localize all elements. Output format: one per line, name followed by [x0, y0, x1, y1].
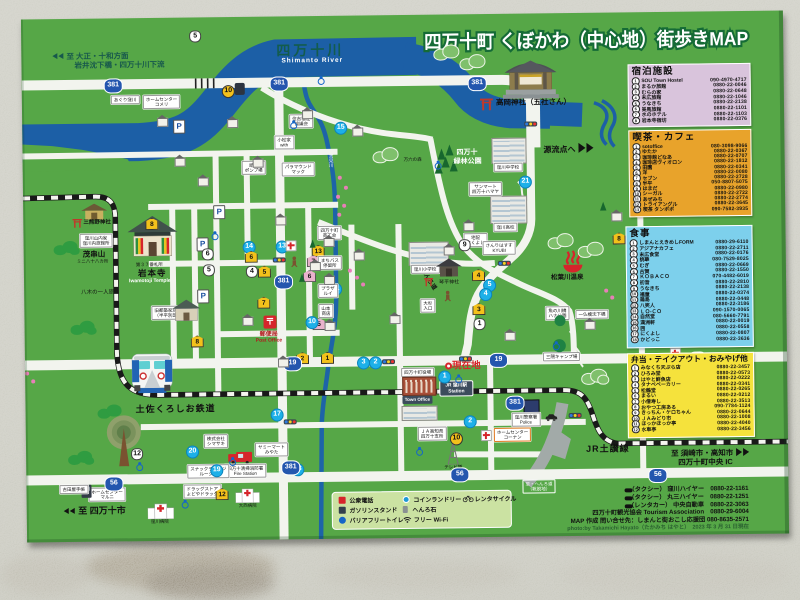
svg-text:四万十町 くぼかわ（中心地）街歩きMAP: 四万十町 くぼかわ（中心地）街歩きMAP [424, 27, 749, 54]
